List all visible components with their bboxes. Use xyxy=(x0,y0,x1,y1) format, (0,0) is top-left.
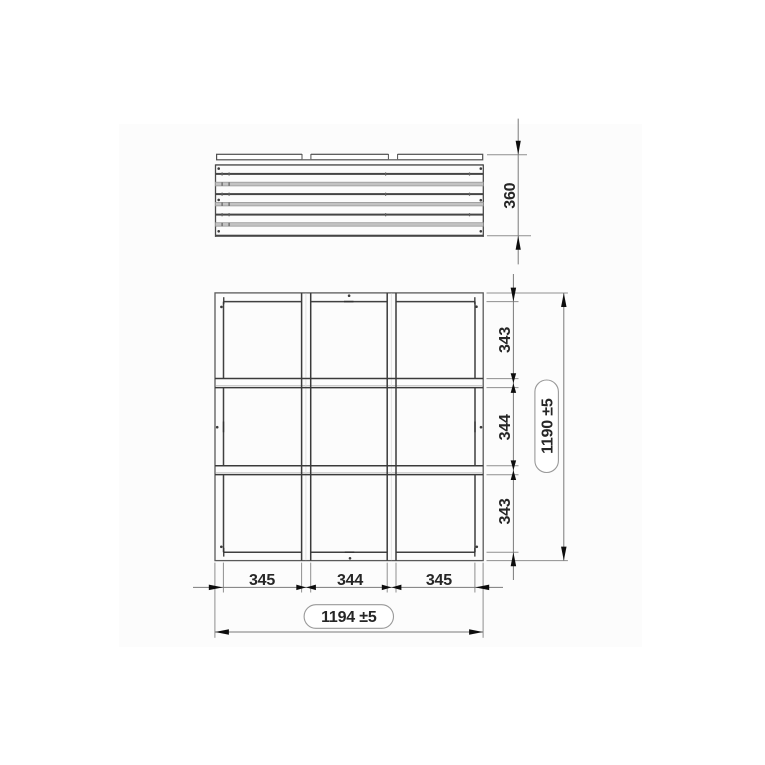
svg-text:343: 343 xyxy=(497,498,514,524)
svg-text:343: 343 xyxy=(497,327,514,353)
svg-text:345: 345 xyxy=(426,572,452,589)
svg-text:360: 360 xyxy=(502,182,519,208)
svg-text:344: 344 xyxy=(497,414,514,440)
svg-text:1190 ±5: 1190 ±5 xyxy=(539,398,556,454)
svg-text:1194 ±5: 1194 ±5 xyxy=(321,609,377,626)
svg-text:344: 344 xyxy=(337,572,363,589)
svg-text:345: 345 xyxy=(249,572,275,589)
